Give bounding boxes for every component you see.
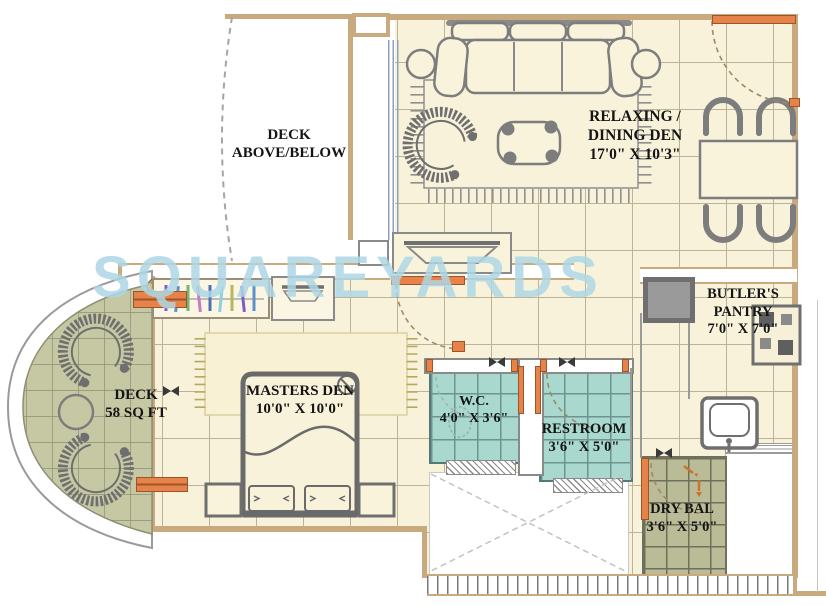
top-column bbox=[352, 13, 390, 37]
entry-door-leaf bbox=[712, 15, 796, 24]
right-corner-wall-h bbox=[792, 591, 826, 596]
dry-balcony-label: DRY BAL 3'6" X 5'0" bbox=[638, 501, 726, 536]
pantry-column bbox=[643, 277, 695, 323]
deck-label: DECK 58 SQ FT bbox=[90, 386, 182, 423]
deck-planter-bottom bbox=[136, 477, 188, 492]
duct-area bbox=[725, 452, 794, 574]
squareyards-watermark: SQUAREYARDS bbox=[92, 244, 604, 311]
divider-strip-right bbox=[535, 366, 541, 414]
restroom-door-jamb-left bbox=[540, 359, 547, 372]
plot-edge-line bbox=[817, 300, 818, 592]
bottom-step-wall bbox=[422, 526, 427, 578]
wc-label: W.C. 4'0" X 3'6" bbox=[429, 393, 519, 427]
deck-above-below-label: DECK ABOVE/BELOW bbox=[228, 126, 350, 163]
wc-door-jamb-right bbox=[511, 359, 518, 372]
deck-table bbox=[59, 395, 93, 429]
relaxing-dining-den-label: RELAXING / DINING DEN 17'0" X 10'3" bbox=[568, 108, 702, 165]
deck-chair bbox=[54, 309, 138, 391]
deck-chair bbox=[54, 429, 138, 511]
deck-top-wall bbox=[225, 14, 353, 19]
masters-door-jamb bbox=[452, 341, 465, 352]
restroom-label: RESTROOM 3'6" X 5'0" bbox=[537, 421, 631, 456]
living-room-window bbox=[388, 40, 399, 240]
duct-sill bbox=[725, 443, 795, 454]
restroom-window-sill bbox=[553, 478, 623, 493]
corridor-wall-line bbox=[640, 313, 642, 458]
butlers-pantry-label: BUTLER'S PANTRY 7'0" X 7'0" bbox=[693, 286, 793, 339]
wc-door-jamb-left bbox=[426, 359, 433, 372]
wc-window-sill bbox=[446, 460, 516, 475]
restroom-door-jamb-right bbox=[622, 359, 629, 372]
masters-bottom-wall bbox=[150, 526, 427, 532]
entry-door-jamb bbox=[789, 98, 800, 107]
floor-plan: DECK ABOVE/BELOW RELAXING / DINING DEN 1… bbox=[0, 0, 826, 605]
masters-den-label: MASTERS DEN 10'0" X 10'0" bbox=[240, 382, 360, 419]
bottom-hatched-wall bbox=[427, 574, 793, 596]
